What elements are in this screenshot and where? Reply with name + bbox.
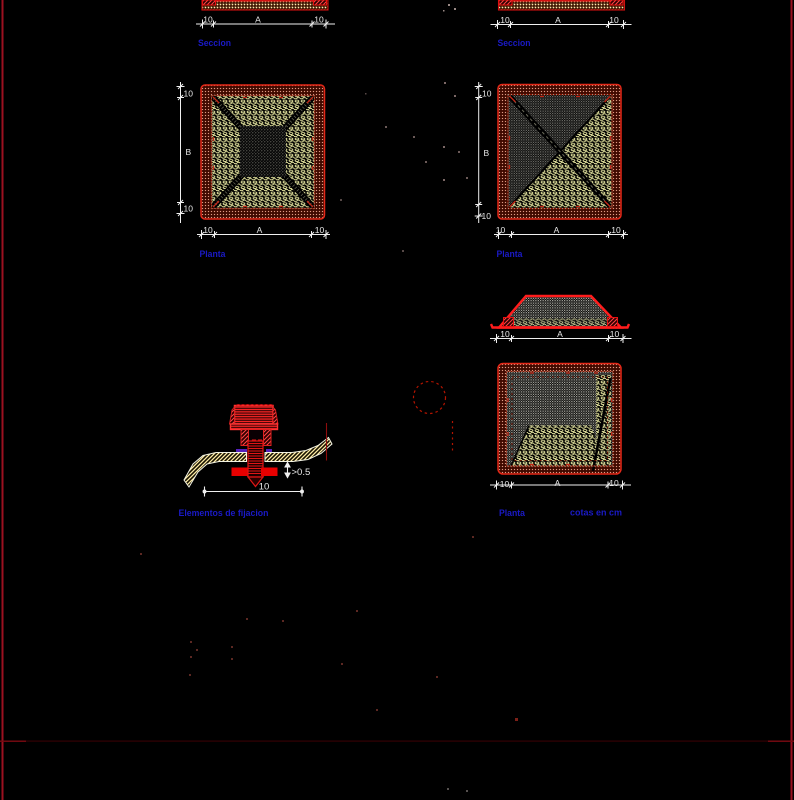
svg-text:A: A (257, 225, 263, 235)
svg-text:Elementos de fijacion: Elementos de fijacion (179, 508, 269, 518)
svg-text:10: 10 (184, 89, 194, 99)
svg-text:10: 10 (259, 482, 270, 493)
svg-text:10: 10 (184, 204, 194, 214)
svg-text:Planta: Planta (499, 508, 526, 518)
svg-text:10: 10 (500, 15, 510, 25)
svg-text:10: 10 (203, 225, 213, 235)
svg-text:10: 10 (315, 225, 325, 235)
svg-text:A: A (555, 15, 561, 25)
svg-text:B: B (186, 147, 192, 157)
svg-text:cotas en cm: cotas en cm (570, 508, 622, 518)
svg-text:10: 10 (314, 15, 324, 25)
svg-text:A: A (255, 15, 261, 25)
svg-text:10: 10 (482, 211, 492, 221)
svg-text:10: 10 (611, 225, 621, 235)
svg-text:Planta: Planta (497, 249, 524, 259)
svg-text:10: 10 (203, 15, 213, 25)
svg-text:10: 10 (609, 15, 619, 25)
svg-text:Seccion: Seccion (198, 38, 231, 48)
svg-text:10: 10 (610, 329, 620, 339)
svg-text:>0.5: >0.5 (292, 467, 311, 478)
svg-text:B: B (484, 148, 490, 158)
svg-text:10: 10 (500, 479, 510, 489)
svg-text:10: 10 (500, 329, 510, 339)
svg-text:Seccion: Seccion (498, 38, 531, 48)
svg-text:10: 10 (496, 225, 506, 235)
svg-text:A: A (554, 225, 560, 235)
svg-text:10: 10 (482, 89, 492, 99)
svg-text:10: 10 (609, 478, 619, 488)
svg-text:A: A (557, 329, 563, 339)
svg-text:A: A (555, 478, 561, 488)
svg-text:Planta: Planta (200, 249, 227, 259)
